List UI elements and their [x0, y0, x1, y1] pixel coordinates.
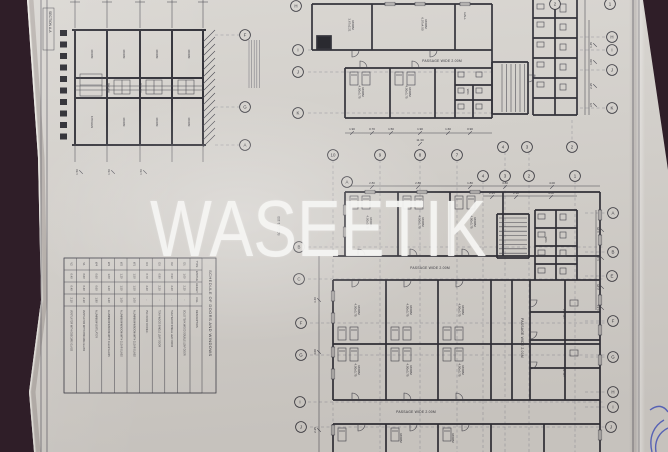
- grid-bubble-label: J: [611, 68, 613, 73]
- section-room-label: KITCHEN: [90, 116, 94, 128]
- schedule-cell-desc: TEAK WOOD SINGLE LEAF DOOR: [170, 310, 173, 347]
- sheet-border-lines: [41, 0, 639, 452]
- schedule-cell-width: 1.00: [183, 273, 187, 279]
- dim-label: 1.50: [75, 169, 79, 175]
- dim-label: 1.45: [589, 42, 593, 48]
- grid-bubble-label: 10: [331, 153, 336, 158]
- room-label: ROOM4.00x3.75: [357, 85, 365, 99]
- schedule-cell-cill: 2.10: [82, 297, 86, 303]
- paper-edge: [28, 0, 45, 452]
- passage-label: PASSAGE WIDE 2.00M: [422, 59, 462, 63]
- dim-label: 2.30: [513, 191, 519, 195]
- section-room-label: ROOM: [187, 50, 191, 59]
- dim-label: 1.90: [417, 127, 423, 131]
- grid-bubble-label: H: [611, 390, 614, 395]
- section-room-label: ROOM: [90, 50, 94, 59]
- room-label: ROOM4.00x3.75: [469, 215, 477, 229]
- grid-bubble-label: F: [244, 33, 247, 38]
- dim-label: 11.30: [416, 138, 424, 142]
- dim-label: 1.00: [589, 59, 593, 65]
- grid-bubble-label: A: [346, 180, 349, 185]
- dim-label: 0.70: [369, 127, 375, 131]
- room-label: ROOM4.00x3.75: [457, 303, 465, 317]
- schedule-cell-height: 2.20: [170, 285, 174, 291]
- grid-bubble-label: I: [299, 400, 300, 405]
- dim-label: 1.20: [596, 255, 600, 261]
- dim-label: 1.50: [139, 169, 143, 175]
- door-arcs: [352, 50, 537, 431]
- schedule-cell-cill: 2.10: [69, 297, 73, 303]
- room-label: ROOM4.00x3.75: [405, 363, 413, 377]
- schedule-cell-desc: ALUMINIUM WINDOW WITH CLEAR GLASS: [132, 310, 135, 357]
- grid-bubble-label: A: [612, 211, 615, 216]
- dim-label: 3.80: [502, 181, 508, 185]
- stamp-ink: [650, 406, 668, 452]
- room-label: ROOM6.07x4.50: [420, 17, 428, 31]
- schedule-cell-cill: 1.00: [132, 297, 136, 303]
- grid-bubble-label: I: [612, 405, 613, 410]
- schedule-title: SCHEDULE OF DOORS AND WINDOWS: [208, 270, 213, 357]
- grid-bubble-label: E: [611, 274, 614, 279]
- grid-bubble-label: K: [297, 111, 300, 116]
- schedule-header: WIDTHE: [195, 271, 199, 281]
- room-label: ROOM4.00x3.75: [404, 85, 412, 99]
- grid-bubble-label: J: [610, 425, 612, 430]
- schedule-cell-width: 0.90: [170, 273, 174, 279]
- schedule-cell-width: 0.60: [95, 273, 99, 279]
- schedule-cell-cill: -: [170, 300, 173, 301]
- schedule-cell-desc: ALUMINIUM WINDOW WITH CLEAR GLASS: [107, 310, 110, 357]
- grid-bubble-label: J: [297, 70, 299, 75]
- schedule-cell-height: 1.50: [120, 285, 124, 291]
- schedule-cell-height: 0.60: [95, 285, 99, 291]
- grid-bubble-label: K: [611, 106, 614, 111]
- section-room-label: ROOM: [155, 50, 159, 59]
- schedule-cell-height: 2.20: [145, 285, 149, 291]
- dim-label: 1.90: [349, 127, 355, 131]
- schedule-cell-desc: TEAK WOOD SINGLE LEAF DOOR: [158, 310, 161, 347]
- grid-bubble-label: G: [611, 355, 615, 360]
- grid-bubble-label: F: [612, 319, 615, 324]
- schedule-cell-width: 0.60: [82, 273, 86, 279]
- schedule-cell-width: 1.50: [132, 273, 136, 279]
- dim-label: 1.80: [467, 181, 473, 185]
- schedule-cell-height: 0.40: [69, 285, 73, 291]
- walls: [312, 0, 600, 452]
- schedule-cell-type: D4: [145, 262, 149, 266]
- room-label: PNTRY: [562, 367, 566, 377]
- room-label: ROOM4.00x3.75: [417, 215, 425, 229]
- dim-label: 0.90: [467, 127, 473, 131]
- dim-label: 3.40: [313, 297, 317, 303]
- dim-label: 2.80: [415, 181, 421, 185]
- grid-bubble-label: G: [243, 105, 247, 110]
- grid-bubble-label: C: [297, 277, 300, 282]
- schedule-cell-height: 1.20: [107, 285, 111, 291]
- schedule-cell-width: 0.40: [69, 273, 73, 279]
- passage-label: PASSAGE WIDE 2.00M: [396, 410, 436, 414]
- schedule-cell-width: 0.80: [158, 273, 162, 279]
- plan-labels: PASSAGE WIDE 2.00MPASSAGE WIDE 2.00MPASS…: [75, 12, 600, 443]
- grid-bubble-label: B: [298, 245, 301, 250]
- room-label: ROOM: [451, 433, 455, 443]
- dimension-ticks: [79, 43, 604, 432]
- grid-bubble-label: F: [300, 321, 303, 326]
- dim-label: 1.50: [107, 169, 111, 175]
- schedule-cell-cill: -: [145, 300, 148, 301]
- schedule-cell-height: 0.40: [82, 285, 86, 291]
- schedule-cell-desc: VENTILATOR WITH OBSCURE GLASS: [82, 310, 85, 351]
- passage-label: PASSAGE WIDE 2.00M: [410, 266, 450, 270]
- room-label: ROOM4.00x3.75: [457, 363, 465, 377]
- schedule-header: TYPE: [195, 261, 199, 268]
- grid-bubble-label: J: [300, 425, 302, 430]
- room-label: W.C.: [466, 89, 470, 96]
- room-label: ROOM4.00x3.75: [353, 303, 361, 317]
- schedule-header: DESCRIPTION: [195, 310, 199, 328]
- room-label: ROOM3.67x2.21: [347, 18, 355, 32]
- dim-label: 2.80: [369, 181, 375, 185]
- schedule-cell-type: D3: [158, 262, 162, 266]
- grid-bubble-label: I: [611, 48, 612, 53]
- room-label: HALL: [463, 12, 467, 20]
- notes-text-block: [249, 40, 259, 88]
- dim-label: 4.00: [549, 181, 555, 185]
- schedule-cell-type: W1: [132, 262, 136, 266]
- section-room-label: ROOM: [187, 118, 191, 127]
- schedule-cell-height: 2.20: [158, 285, 162, 291]
- schedule-cell-width: 1.20: [120, 273, 124, 279]
- schedule-cell-cill: -: [158, 300, 161, 301]
- schedule-cell-type: V1: [82, 262, 86, 266]
- schedule-cell-cill: 1.00: [120, 297, 124, 303]
- dim-label: 2.25: [489, 191, 495, 195]
- dim-label: 2.25: [313, 427, 317, 433]
- dim-label: 2.25: [596, 284, 600, 290]
- grid-bubble-label: G: [299, 353, 303, 358]
- section-scale-note: SCALE 1:100: [277, 216, 281, 236]
- section-title: SECTION A-A: [48, 11, 52, 33]
- room-label: ROOM4.00x3.75: [405, 303, 413, 317]
- section-passage-label: PASSAGE: [139, 83, 142, 94]
- dim-label: 4.00: [548, 191, 554, 195]
- schedule-cell-cill: 1.20: [107, 297, 111, 303]
- section-room-label: ROOM: [155, 118, 159, 127]
- schedule-cell-desc: ALUMINIUM VENTILATOR: [95, 310, 98, 338]
- room-label: ROOM4.00x3.75: [365, 215, 373, 229]
- schedule-cell-width: 1.00: [107, 273, 111, 279]
- schedule-cell-height: 1.50: [132, 285, 136, 291]
- photo-background: SECTION A-AROOMROOMROOMROOMKITCHENROOMRO…: [0, 0, 668, 452]
- schedule-cell-type: W2: [120, 262, 124, 266]
- schedule-header: CILL: [195, 297, 199, 303]
- schedule-cell-type: D1: [183, 262, 187, 266]
- schedule-cell-type: W3: [107, 262, 111, 266]
- room-label: ROOM: [399, 433, 403, 443]
- schedule-cell-desc: ALUMINIUM WINDOW WITH CLEAR GLASS: [120, 310, 123, 357]
- schedule-cell-desc: VENTILATOR WITH OBSCURE GLASS: [69, 310, 72, 351]
- grid-bubble-label: I: [297, 48, 298, 53]
- schedule-cell-type: V2: [69, 262, 73, 266]
- dim-label: 4.00: [313, 349, 317, 355]
- dim-label: 1.50: [388, 127, 394, 131]
- grid-bubble-label: B: [612, 250, 615, 255]
- floor-plan-svg: SECTION A-AROOMROOMROOMROOMKITCHENROOMRO…: [0, 0, 668, 452]
- room-label: W.C.: [544, 237, 548, 244]
- section-room-label: ROOM: [122, 50, 126, 59]
- schedule-header: HEIGHT: [195, 283, 199, 293]
- schedule-cell-type: D2: [170, 262, 174, 266]
- blueprint-paper: SECTION A-AROOMROOMROOMROOMKITCHENROOMRO…: [0, 0, 668, 452]
- dim-label: 3.44: [596, 305, 600, 311]
- dim-label: 1.60: [445, 127, 451, 131]
- dim-label: 3.15: [596, 227, 600, 233]
- grid-bubble-label: H: [610, 35, 613, 40]
- section-room-label: ROOM: [122, 118, 126, 127]
- grid-bubble-label: H: [294, 4, 297, 9]
- schedule-cell-desc: PVC DOOR FOR W.C.: [145, 310, 147, 334]
- schedule-cell-type: W4: [95, 262, 99, 266]
- schedule-cell-desc: SOLID TEAK WOOD DOUBLE LEAF DOOR: [183, 310, 186, 356]
- room-label: ROOM4.00x3.75: [353, 363, 361, 377]
- passage-label: PASSAGE WIDE 2.00M: [520, 318, 524, 358]
- dim-label: 3.5: [589, 103, 593, 108]
- schedule-cell-cill: -: [183, 300, 186, 301]
- schedule-cell-width: 0.70: [145, 273, 149, 279]
- grid-bubble-label: A: [244, 143, 247, 148]
- room-label: PNTRY: [562, 309, 566, 319]
- section-passage-label: PASSAGE: [107, 83, 110, 94]
- schedule-cell-height: 2.20: [183, 285, 187, 291]
- schedule-cell-cill: 1.80: [95, 297, 99, 303]
- dim-label: 2.25: [589, 83, 593, 89]
- schedule-table: TYPEWIDTHEHEIGHTCILLDESCRIPTIOND11.002.2…: [64, 258, 216, 393]
